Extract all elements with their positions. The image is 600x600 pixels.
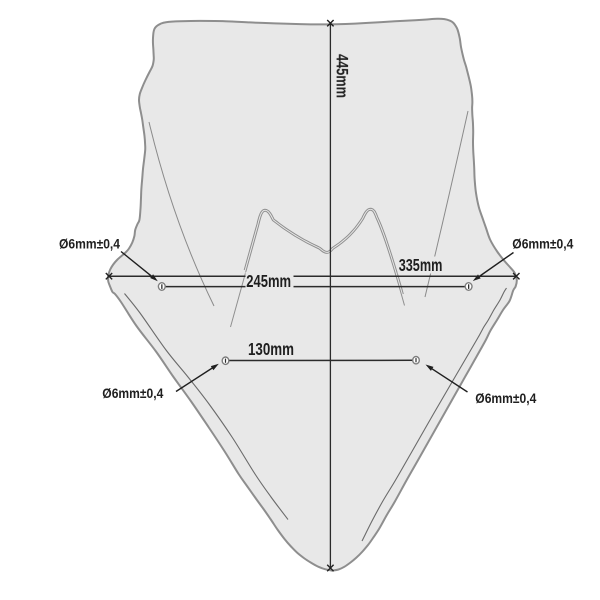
svg-text:245mm: 245mm	[246, 271, 291, 291]
svg-text:335mm: 335mm	[399, 255, 443, 275]
svg-text:130mm: 130mm	[248, 339, 294, 359]
svg-text:Ø6mm±0,4: Ø6mm±0,4	[59, 237, 120, 252]
svg-text:Ø6mm±0,4: Ø6mm±0,4	[475, 391, 536, 406]
svg-text:Ø6mm±0,4: Ø6mm±0,4	[512, 237, 573, 252]
svg-text:445mm: 445mm	[333, 54, 351, 98]
svg-text:Ø6mm±0,4: Ø6mm±0,4	[102, 386, 163, 401]
